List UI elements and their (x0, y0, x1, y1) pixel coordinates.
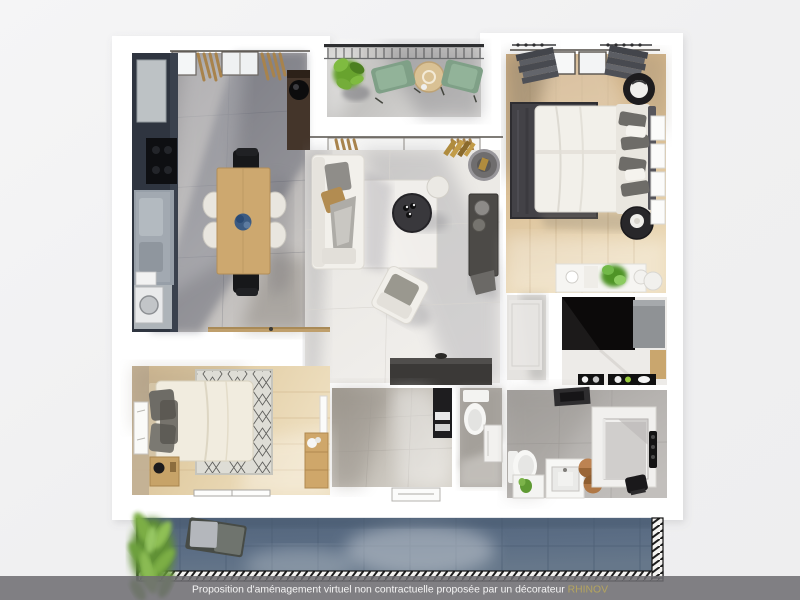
svg-text:Proposition d'aménagement virt: Proposition d'aménagement virtuel non co… (192, 585, 608, 596)
